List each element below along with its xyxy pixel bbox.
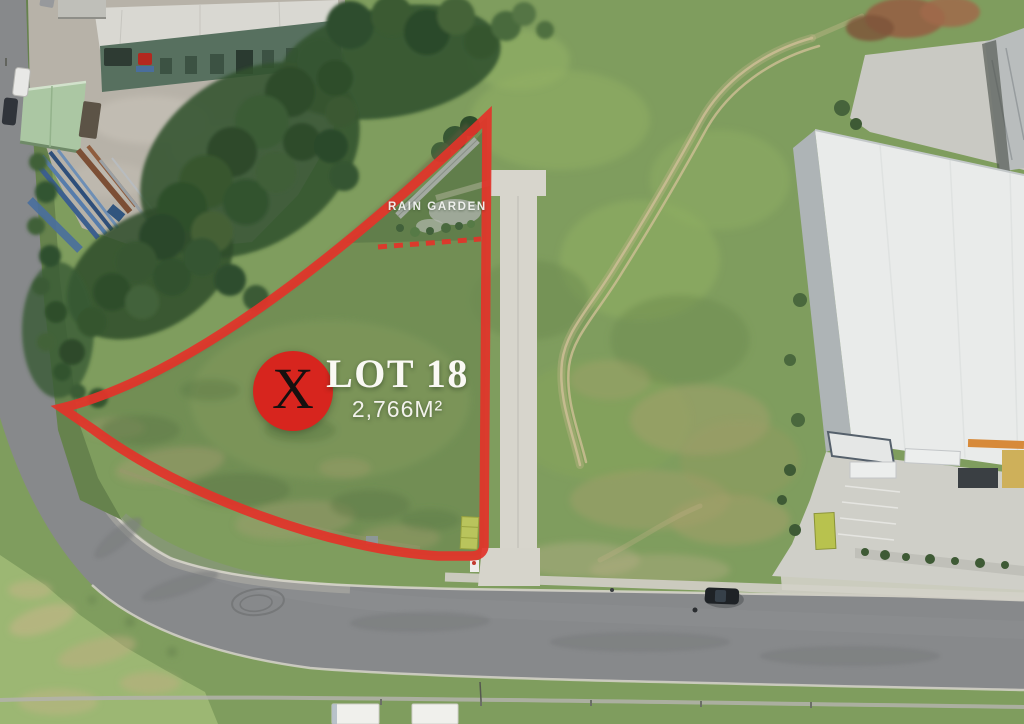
small-roof [412,704,458,724]
tan-canopy [1002,450,1024,488]
blue-pallet [136,66,154,72]
brand-logo-letter: X [272,360,314,418]
brand-logo: X [253,351,333,431]
small-roof [332,704,379,724]
side-canopy [58,0,106,18]
lot-area-label: 2,766M² [325,396,470,422]
white-van [12,67,30,97]
aerial-scene-svg [0,0,1024,724]
rain-garden-label: RAIN GARDEN [388,201,487,213]
aerial-lot-photo: RAIN GARDEN X LOT 18 2,766M² [0,0,1024,724]
site-container [460,517,479,550]
red-vehicle [138,53,152,65]
lot-number-label: LOT 18 [325,352,470,396]
dark-car [2,97,19,125]
green-canopy [20,82,86,152]
dock-equipment [958,468,998,488]
road-debris [693,608,698,613]
lot-label-block: LOT 18 2,766M² [325,352,470,422]
dark-truck [104,48,132,66]
road-debris [610,588,614,592]
skip-bin [814,513,836,550]
